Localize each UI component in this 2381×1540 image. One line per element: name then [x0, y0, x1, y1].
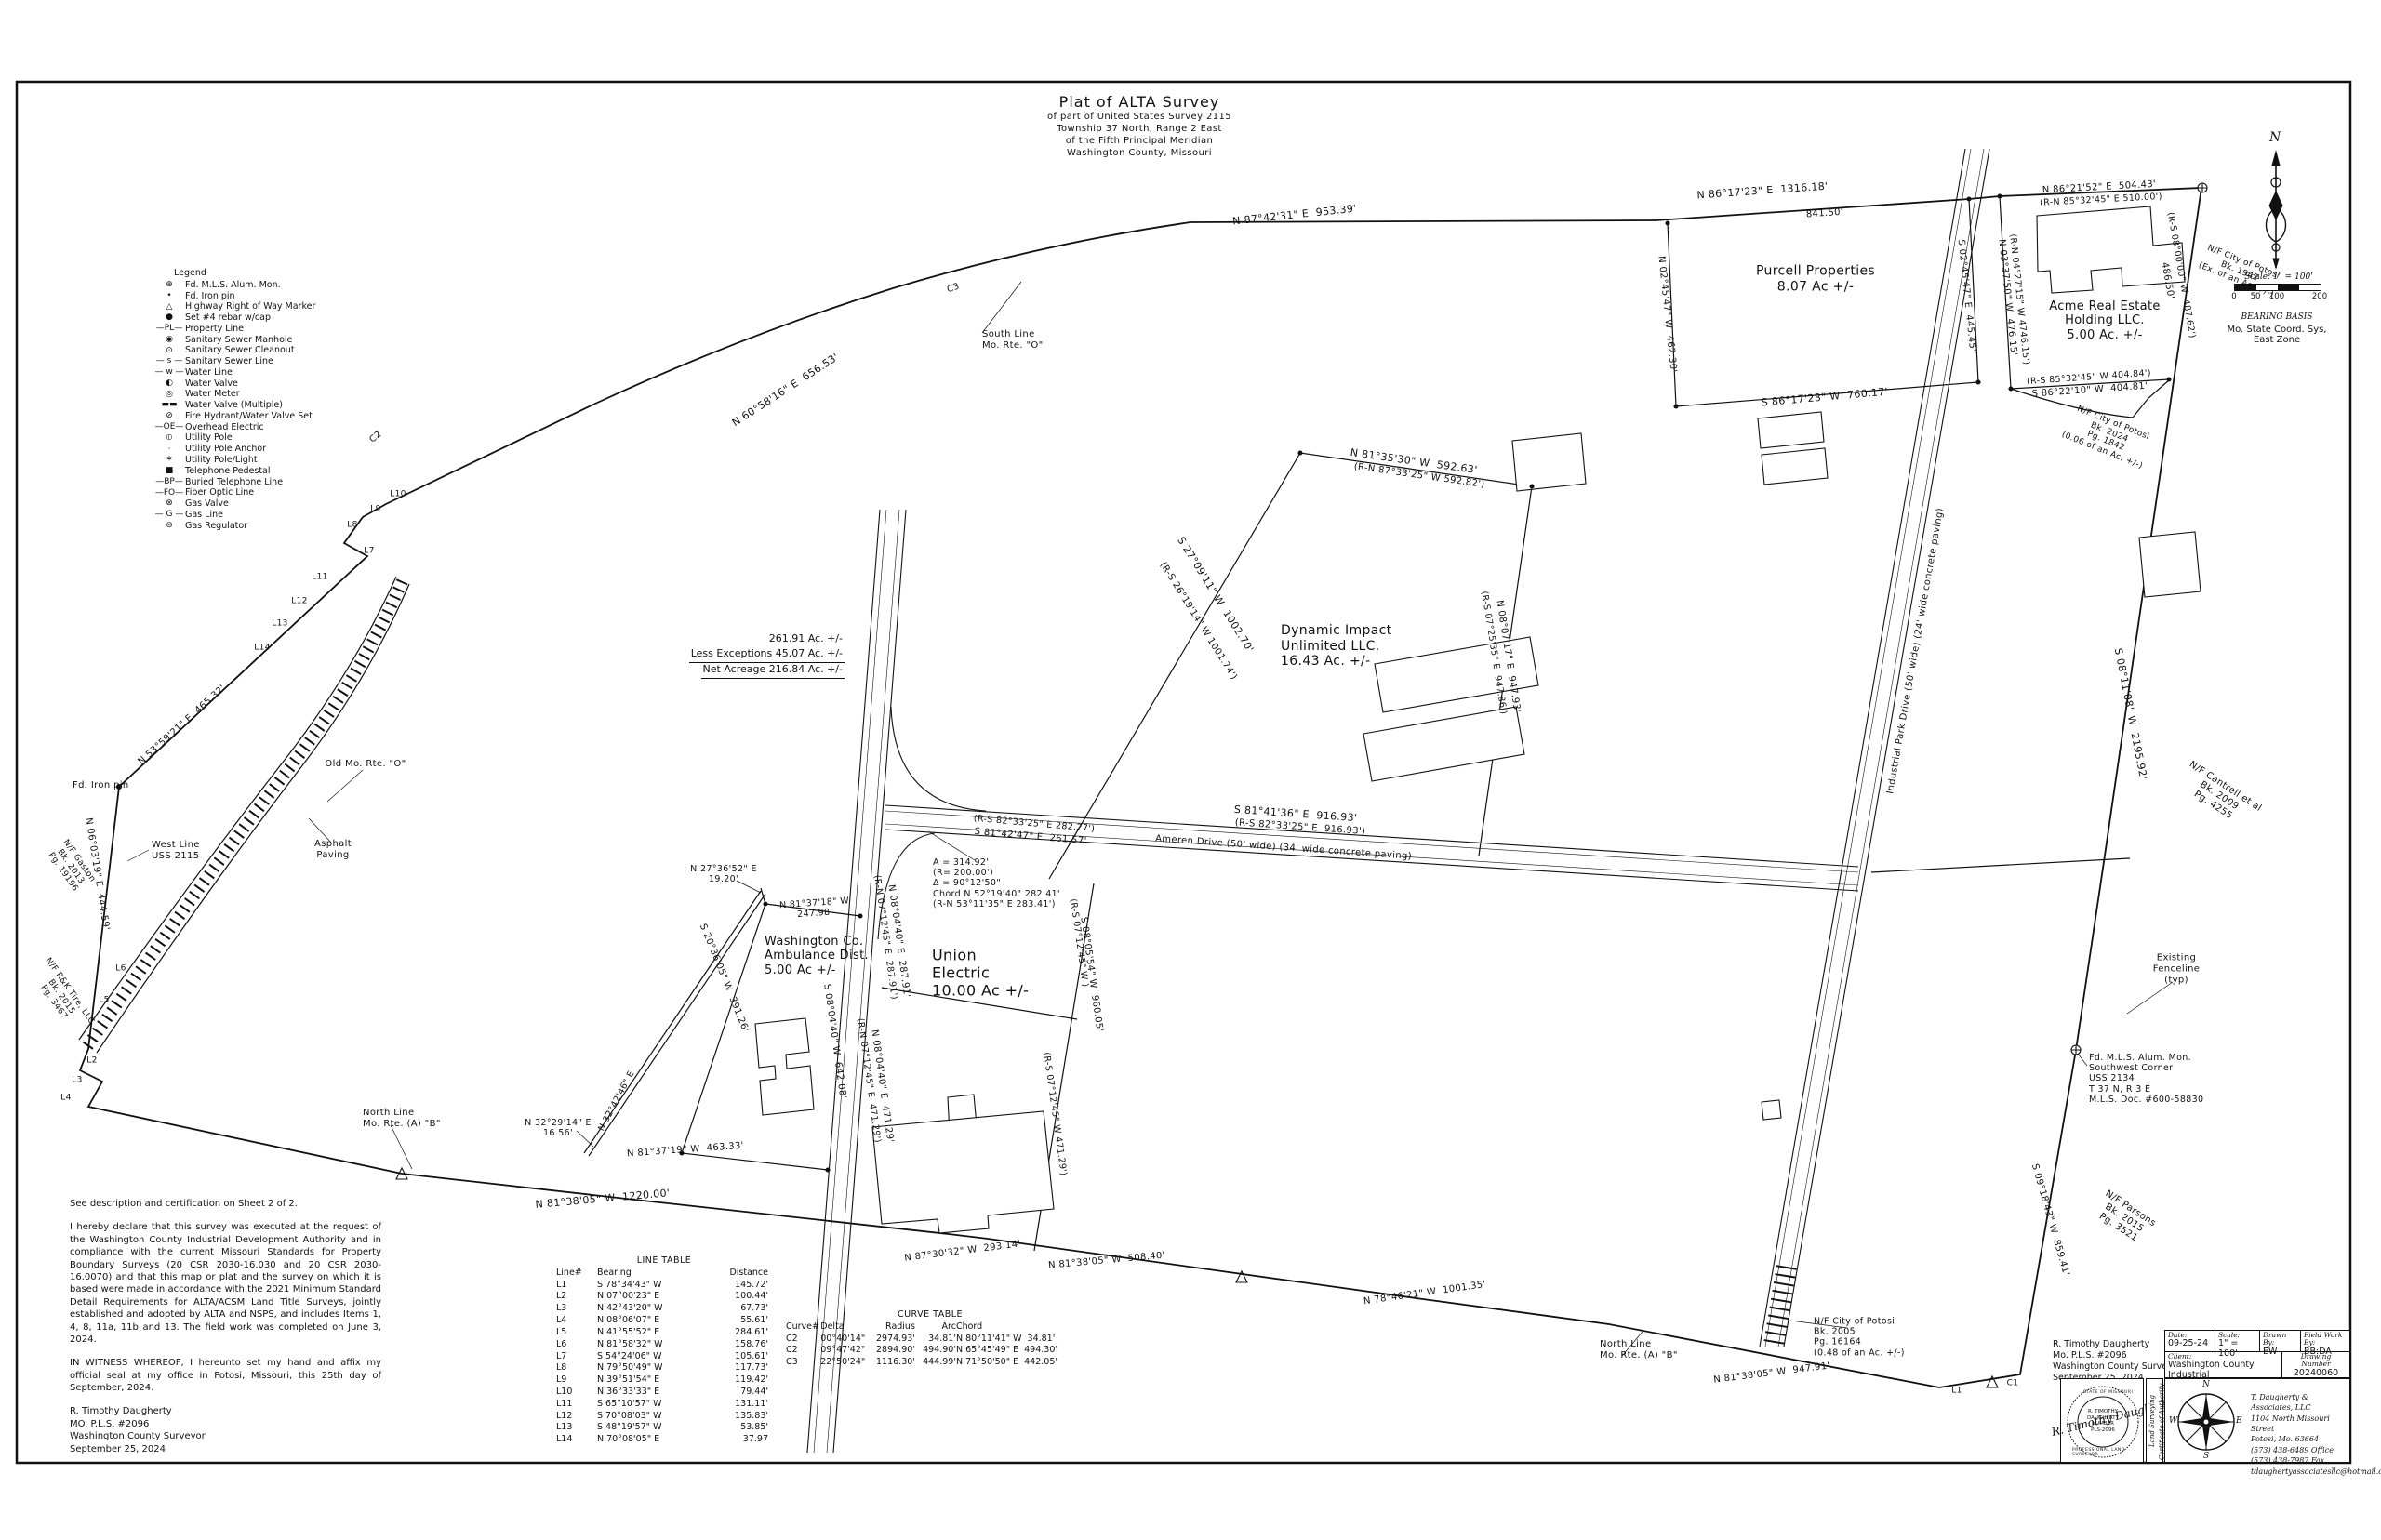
legend-item: —PL—Property Line: [153, 324, 377, 335]
legend-symbol-icon: ⊜: [153, 521, 185, 531]
legend-label: Fiber Optic Line: [185, 487, 254, 498]
legend-symbol-icon: ●: [153, 312, 185, 323]
table-cell: 55.61': [707, 1315, 768, 1327]
legend-label: Highway Right of Way Marker: [185, 301, 315, 312]
table-title: LINE TABLE: [556, 1255, 772, 1268]
company-info-line: Potosi, Mo. 63664: [2251, 1434, 2349, 1444]
table-cell: L6: [556, 1339, 597, 1351]
table-cell: L4: [556, 1315, 597, 1327]
table-cell: S 54°24'06" W: [597, 1351, 707, 1363]
legend-item: ◉Sanitary Sewer Manhole: [153, 335, 377, 346]
legend-label: Water Valve (Multiple): [185, 400, 283, 411]
map-label: Acme Real Estate Holding LLC. 5.00 Ac. +…: [2049, 299, 2161, 342]
legend-symbol-icon: ◐: [153, 378, 185, 389]
table-cell: 1116.30': [870, 1357, 915, 1369]
table-cell: 67.73': [707, 1303, 768, 1315]
table-row: C209°47'42"2894.90'494.90'N 65°45'49" E …: [786, 1345, 1074, 1357]
legend-label: Water Meter: [185, 389, 240, 400]
table-row: Line#BearingDistance: [556, 1268, 772, 1280]
table-cell: 2894.90': [870, 1345, 915, 1357]
tract-boundary: [80, 188, 2201, 1387]
legend-item: ●Set #4 rebar w/cap: [153, 312, 377, 324]
plat-drawing-area: C2N 60°58'16" E 656.53'C3South Line Mo. …: [0, 0, 2381, 1540]
legend-symbol-icon: ◉: [153, 335, 185, 345]
table-cell: 34.81': [915, 1334, 956, 1346]
table-cell: C3: [786, 1357, 820, 1369]
legend-item: ⊜Gas Regulator: [153, 521, 377, 532]
table-cell: Radius: [870, 1321, 915, 1334]
acreage-row: Less Exceptions 45.07 Ac. +/-: [595, 647, 845, 663]
table-cell: 494.90': [915, 1345, 956, 1357]
table-cell: L3: [556, 1303, 597, 1315]
table-cell: L5: [556, 1327, 597, 1339]
map-label: L12: [291, 597, 308, 607]
map-label: N 32°29'14" E 16.56': [525, 1118, 592, 1138]
legend-item: ◐Water Valve: [153, 378, 377, 390]
table-cell: L1: [556, 1280, 597, 1292]
legend-symbol-icon: — G —: [153, 510, 185, 520]
legend-symbol-icon: ·: [153, 445, 185, 455]
legend-item: ·Utility Pole Anchor: [153, 444, 377, 455]
legend-symbol-icon: •: [153, 291, 185, 301]
title-line: of part of United States Survey 2115: [1009, 111, 1270, 123]
table-cell: Line#: [556, 1268, 597, 1280]
legend-symbol-icon: ▬▬: [153, 400, 185, 410]
map-label: Union Electric 10.00 Ac +/-: [932, 948, 1029, 1001]
table-cell: S 70°08'03" W: [597, 1411, 707, 1423]
table-cell: 105.61': [707, 1351, 768, 1363]
map-label: N 27°36'52" E 19.20': [690, 864, 757, 884]
table-cell: N 70°08'05" E: [597, 1434, 707, 1446]
table-row: Curve#DeltaRadiusArcChord: [786, 1321, 1074, 1334]
legend-item: ■Telephone Pedestal: [153, 466, 377, 477]
legend-symbol-icon: —OE—: [153, 422, 185, 432]
table-cell: 135.83': [707, 1411, 768, 1423]
table-cell: N 41°55'52" E: [597, 1327, 707, 1339]
legend-symbol-icon: ⊗: [153, 498, 185, 509]
legend-label: Sanitary Sewer Cleanout: [185, 345, 295, 356]
table-row: L11S 65°10'57" W131.11': [556, 1399, 772, 1411]
table-cell: 119.42': [707, 1374, 768, 1387]
table-cell: N 07°00'23" E: [597, 1291, 707, 1303]
table-row: L5N 41°55'52" E284.61': [556, 1327, 772, 1339]
legend-item: ▬▬Water Valve (Multiple): [153, 400, 377, 411]
road-industrial-park: [1760, 149, 1989, 1347]
table-cell: 37.97: [707, 1434, 768, 1446]
legend-label: Gas Line: [185, 510, 223, 521]
title-line: Washington County, Missouri: [1009, 147, 1270, 159]
parcel-lines: [584, 196, 2170, 1251]
legend-symbol-icon: ⦶: [153, 433, 185, 444]
legend-symbol-icon: —PL—: [153, 324, 185, 334]
table-row: C200°40'14"2974.93'34.81'N 80°11'41" W 3…: [786, 1334, 1074, 1346]
map-label: N/F City of Potosi Bk. 2005 Pg. 16164 (0…: [1814, 1317, 1905, 1359]
table-row: L1S 78°34'43" W145.72': [556, 1280, 772, 1292]
surveyor-signature-block: R. Timothy Daugherty Mo. P.L.S. #2096 Wa…: [2053, 1339, 2181, 1384]
table-cell: Delta: [820, 1321, 870, 1334]
legend-label: Telephone Pedestal: [185, 466, 271, 477]
certification-paragraph: I hereby declare that this survey was ex…: [70, 1221, 381, 1346]
table-cell: 444.99': [915, 1357, 956, 1369]
table-row: L9N 39°51'54" E119.42': [556, 1374, 772, 1387]
company-info-line: T. Daugherty & Associates, LLC: [2251, 1392, 2349, 1414]
table-row: C322°50'24"1116.30'444.99'N 71°50'50" E …: [786, 1357, 1074, 1369]
map-label: North Line Mo. Rte. (A) "B": [363, 1108, 441, 1130]
map-label: North Line Mo. Rte. (A) "B": [1600, 1339, 1678, 1361]
map-label: Asphalt Paving: [314, 839, 352, 861]
table-cell: 131.11': [707, 1399, 768, 1411]
sheet-title: Plat of ALTA Survey of part of United St…: [1009, 93, 1270, 159]
map-label: L7: [364, 547, 374, 557]
acreage-row: 261.91 Ac. +/-: [595, 632, 845, 647]
legend-label: Set #4 rebar w/cap: [185, 312, 271, 324]
legend-label: Gas Valve: [185, 498, 229, 510]
legend-label: Fire Hydrant/Water Valve Set: [185, 411, 313, 422]
table-cell: Bearing: [597, 1268, 707, 1280]
table-row: L6N 81°58'32" W158.76': [556, 1339, 772, 1351]
old-route-o-road: [79, 577, 409, 1053]
table-cell: Distance: [707, 1268, 768, 1280]
company-info-line: (573) 438-7987 Fax: [2251, 1455, 2349, 1466]
map-label: L14: [254, 644, 271, 654]
table-row: L3N 42°43'20" W67.73': [556, 1303, 772, 1315]
table-cell: N 81°58'32" W: [597, 1339, 707, 1351]
legend-label: Water Valve: [185, 378, 238, 390]
legend-label: Fd. M.L.S. Alum. Mon.: [185, 280, 281, 291]
compass-n: N: [2202, 1380, 2210, 1389]
table-cell: L10: [556, 1387, 597, 1399]
map-label: L6: [115, 964, 126, 975]
legend-symbol-icon: ◎: [153, 390, 185, 400]
compass-s: S: [2203, 1452, 2209, 1461]
table-cell: 79.44': [707, 1387, 768, 1399]
legend-label: Sanitary Sewer Line: [185, 356, 273, 367]
legend-label: Fd. Iron pin: [185, 291, 235, 302]
table-row: L8N 79°50'49" W117.73': [556, 1362, 772, 1374]
legend-symbol-icon: —BP—: [153, 477, 185, 487]
bearing-basis: Mo. State Coord. Sys, East Zone: [2221, 325, 2333, 345]
legend-label: Utility Pole Anchor: [185, 444, 266, 455]
table-row: L2N 07°00'23" E100.44': [556, 1291, 772, 1303]
map-label: South Line Mo. Rte. "O": [982, 329, 1044, 352]
legend-label: Sanitary Sewer Manhole: [185, 335, 292, 346]
legend-symbol-icon: — w —: [153, 367, 185, 378]
table-cell: N 65°45'49" E 494.30': [956, 1345, 1074, 1357]
title-line: Plat of ALTA Survey: [1009, 93, 1270, 111]
legend-item: △Highway Right of Way Marker: [153, 301, 377, 312]
table-cell: 2974.93': [870, 1334, 915, 1346]
table-cell: C2: [786, 1334, 820, 1346]
legend-item: ⊕Fd. M.L.S. Alum. Mon.: [153, 280, 377, 291]
compass-e: E: [2236, 1416, 2242, 1426]
map-label: Old Mo. Rte. "O": [325, 759, 406, 770]
map-label: L11: [312, 573, 328, 583]
legend-symbol-icon: ⊙: [153, 346, 185, 356]
seal-ring-top: STATE OF MISSOURI: [2083, 1390, 2133, 1395]
table-cell: L14: [556, 1434, 597, 1446]
line-table: LINE TABLELine#BearingDistanceL1S 78°34'…: [556, 1255, 772, 1446]
legend-symbol-icon: — s —: [153, 356, 185, 366]
table-cell: N 36°33'33" E: [597, 1387, 707, 1399]
legend-label: Utility Pole/Light: [185, 455, 258, 466]
table-row: L13S 48°19'57" W53.85': [556, 1422, 772, 1434]
company-info-line: 1104 North Missouri Street: [2251, 1414, 2349, 1435]
legend-item: — G —Gas Line: [153, 510, 377, 521]
compass-w: W: [2169, 1416, 2177, 1426]
table-cell: L13: [556, 1422, 597, 1434]
legend-item: —OE—Overhead Electric: [153, 422, 377, 433]
map-label: L1: [1951, 1387, 1962, 1397]
legend-item: ⦶Utility Pole: [153, 432, 377, 444]
table-cell: N 42°43'20" W: [597, 1303, 707, 1315]
table-cell: S 78°34'43" W: [597, 1280, 707, 1292]
legend-item: ✶Utility Pole/Light: [153, 455, 377, 466]
table-cell: 22°50'24": [820, 1357, 870, 1369]
acreage-row: Net Acreage 216.84 Ac. +/-: [595, 663, 845, 679]
curve-table: CURVE TABLECurve#DeltaRadiusArcChordC200…: [786, 1309, 1074, 1369]
table-row: L10N 36°33'33" E79.44': [556, 1387, 772, 1399]
surveyor-seal: STATE OF MISSOURI R. TIMOTHY DAUGHERTY N…: [2060, 1378, 2144, 1463]
legend-item: ◎Water Meter: [153, 389, 377, 400]
table-cell: L9: [556, 1374, 597, 1387]
acreage-summary: 261.91 Ac. +/-Less Exceptions 45.07 Ac. …: [595, 632, 845, 679]
map-label: L13: [272, 619, 288, 630]
legend-label: Water Line: [185, 367, 233, 378]
table-cell: 284.61': [707, 1327, 768, 1339]
table-cell: N 80°11'41" W 34.81': [956, 1334, 1074, 1346]
legend-symbol-icon: ■: [153, 466, 185, 476]
legend-label: Overhead Electric: [185, 422, 264, 433]
legend-item: — w —Water Line: [153, 367, 377, 378]
table-cell: S 65°10'57" W: [597, 1399, 707, 1411]
legend-symbol-icon: △: [153, 302, 185, 312]
legend: Legend ⊕Fd. M.L.S. Alum. Mon.•Fd. Iron p…: [153, 268, 377, 531]
authority-strip: Land Surveying Certificate of Authority …: [2146, 1378, 2163, 1463]
certification-paragraph: R. Timothy Daugherty MO. P.L.S. #2096 Wa…: [70, 1405, 381, 1455]
legend-label: Property Line: [185, 324, 244, 335]
company-box: N E S W T. Daugherty & Associates, LLC11…: [2164, 1378, 2350, 1463]
table-cell: C2: [786, 1345, 820, 1357]
leader-lines: [127, 282, 2173, 1356]
legend-label: Buried Telephone Line: [185, 477, 283, 488]
company-info-line: tdaughertyassociatesllc@hotmail.com: [2251, 1467, 2349, 1477]
legend-item: ⊗Gas Valve: [153, 498, 377, 510]
table-cell: L8: [556, 1362, 597, 1374]
map-label: Fd. Iron pin: [73, 780, 129, 791]
table-cell: L7: [556, 1351, 597, 1363]
company-info-line: (573) 438-6489 Office: [2251, 1445, 2349, 1455]
map-label: L2: [86, 1056, 97, 1067]
building-footprints: [755, 206, 2201, 1233]
map-label: Purcell Properties 8.07 Ac +/-: [1756, 263, 1875, 294]
legend-item: —BP—Buried Telephone Line: [153, 477, 377, 488]
table-cell: 117.73': [707, 1362, 768, 1374]
legend-label: Utility Pole: [185, 432, 233, 444]
legend-item: •Fd. Iron pin: [153, 291, 377, 302]
table-cell: Chord: [956, 1321, 1074, 1334]
table-cell: L11: [556, 1399, 597, 1411]
titleblock-table: Date:09-25-24 Scale:1" = 100' Drawn By:E…: [2164, 1330, 2350, 1378]
legend-title: Legend: [174, 268, 377, 279]
map-label: Dynamic Impact Unlimited LLC. 16.43 Ac. …: [1281, 623, 1392, 670]
map-label: C1: [2007, 1379, 2019, 1389]
table-row: L7S 54°24'06" W105.61': [556, 1351, 772, 1363]
table-cell: N 71°50'50" E 442.05': [956, 1357, 1074, 1369]
legend-item: ⊘Fire Hydrant/Water Valve Set: [153, 411, 377, 422]
table-cell: S 48°19'57" W: [597, 1422, 707, 1434]
map-label: L3: [72, 1076, 82, 1086]
legend-symbol-icon: ✶: [153, 455, 185, 465]
certification-paragraph: See description and certification on She…: [70, 1198, 381, 1210]
north-arrow-icon: [2267, 152, 2286, 268]
title-line: of the Fifth Principal Meridian: [1009, 135, 1270, 147]
map-label: Existing Fenceline (typ): [2153, 952, 2201, 985]
table-row: L4N 08°06'07" E55.61': [556, 1315, 772, 1327]
title-line: Township 37 North, Range 2 East: [1009, 123, 1270, 135]
table-cell: N 79°50'49" W: [597, 1362, 707, 1374]
legend-symbol-icon: —FO—: [153, 488, 185, 498]
table-cell: 145.72': [707, 1280, 768, 1292]
plat-sheet: { "title": { "l1": "Plat of ALTA Survey"…: [0, 0, 2381, 1540]
bearing-basis-title: BEARING BASIS: [2230, 312, 2323, 322]
map-label: Washington Co. Ambulance Dist. 5.00 Ac +…: [765, 935, 869, 977]
table-row: L12S 70°08'03" W135.83': [556, 1411, 772, 1423]
legend-symbol-icon: ⊕: [153, 280, 185, 290]
legend-symbol-icon: ⊘: [153, 411, 185, 421]
map-label: L10: [390, 490, 406, 500]
table-cell: 158.76': [707, 1339, 768, 1351]
north-label: N: [2269, 130, 2281, 145]
table-cell: Curve#: [786, 1321, 820, 1334]
map-label: West Line USS 2115: [152, 840, 200, 862]
certification-paragraph: IN WITNESS WHEREOF, I hereunto set my ha…: [70, 1357, 381, 1394]
company-info: T. Daugherty & Associates, LLC1104 North…: [2251, 1392, 2349, 1477]
table-cell: 100.44': [707, 1291, 768, 1303]
map-label: Fd. M.L.S. Alum. Mon. Southwest Corner U…: [2089, 1053, 2203, 1105]
map-label: A = 314.92' (R= 200.00') Δ = 90°12'50" C…: [933, 857, 1060, 909]
table-cell: N 08°06'07" E: [597, 1315, 707, 1327]
legend-label: Gas Regulator: [185, 521, 247, 532]
seal-ring-bottom: PROFESSIONAL LAND SURVEYOR: [2072, 1448, 2143, 1457]
legend-item: ⊙Sanitary Sewer Cleanout: [153, 345, 377, 356]
map-label: L4: [60, 1094, 71, 1104]
scale-caption: Scale: 1" = 100': [2236, 272, 2321, 282]
table-cell: 09°47'42": [820, 1345, 870, 1357]
certification-notes: See description and certification on She…: [70, 1198, 381, 1467]
table-cell: 53.85': [707, 1422, 768, 1434]
table-cell: N 39°51'54" E: [597, 1374, 707, 1387]
table-row: L14N 70°08'05" E37.97: [556, 1434, 772, 1446]
scale-bar: [2234, 284, 2321, 291]
table-cell: 00°40'14": [820, 1334, 870, 1346]
table-cell: Arc: [915, 1321, 956, 1334]
table-cell: L12: [556, 1411, 597, 1423]
map-label: L5: [99, 996, 109, 1006]
date-value: 09-25-24: [2168, 1339, 2212, 1349]
legend-item: —FO—Fiber Optic Line: [153, 487, 377, 498]
legend-item: — s —Sanitary Sewer Line: [153, 356, 377, 367]
table-title: CURVE TABLE: [786, 1309, 1074, 1321]
table-cell: L2: [556, 1291, 597, 1303]
